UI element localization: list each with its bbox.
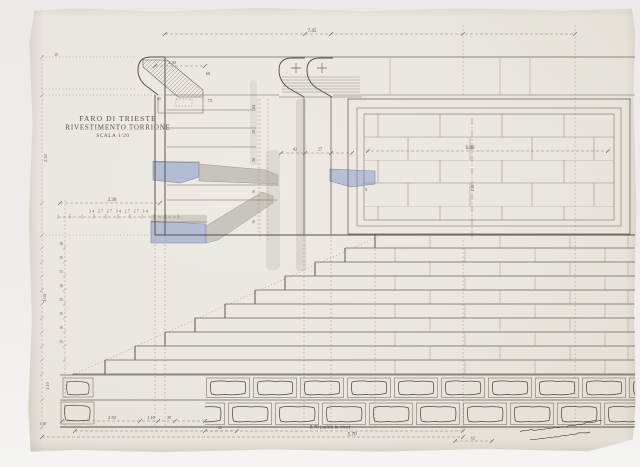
coping-hatch-lines	[282, 77, 360, 92]
grey-streak-pier	[296, 99, 306, 271]
course-tick: 16	[252, 190, 256, 194]
step-tick: 15	[59, 256, 63, 260]
plinth-note-line-2: 5.70	[347, 432, 356, 438]
dim-tick-15: 15	[54, 53, 58, 57]
dim-ledge: 2.30	[108, 198, 117, 203]
step-tick: 15	[59, 340, 63, 344]
course-tick: 84	[252, 105, 256, 109]
plinth-note-line-1: 8.70 (salita in vivo)	[310, 424, 351, 431]
foundation-left-blocks	[61, 378, 94, 424]
grey-streak-wall	[250, 80, 257, 165]
dim-left-base-note: 1.50	[40, 422, 47, 426]
stone-washes	[151, 80, 375, 271]
step-tick: 15	[59, 270, 63, 274]
dim-base-62-right: 62	[471, 437, 475, 441]
course-tick: 20	[252, 130, 256, 134]
title-line-1: FARO DI TRIESTE	[79, 114, 156, 123]
drawing-linework: FARO DI TRIESTE RIVESTIMENTO TORRIONE SC…	[0, 0, 640, 467]
blue-stone-block-lower	[151, 221, 206, 243]
dim-panel-center: 2.30	[471, 185, 475, 192]
coping-profile-left	[279, 58, 305, 97]
dim-left-base: 1.10	[45, 381, 50, 389]
dim-base-250: 2.50	[108, 415, 116, 420]
course-tick: 16	[252, 220, 256, 224]
step-tick: 16	[59, 242, 63, 246]
step-tick: 15	[59, 312, 63, 316]
title-line-2: RIVESTIMENTO TORRIONE	[65, 124, 170, 132]
step-tread-lines	[73, 248, 635, 374]
foundation-course-upper	[205, 376, 635, 400]
step-riser-lines	[73, 235, 375, 375]
course-tick: 28	[252, 158, 256, 162]
dim-block-h: 75	[208, 98, 213, 103]
dim-left-steps: 3.04	[42, 293, 47, 301]
dim-overall-top: 7.45	[308, 29, 317, 34]
dim-module-row: 34 27 27 34 27 27 34	[89, 210, 149, 214]
title-line-3: SCALA 1/20	[96, 133, 129, 139]
dim-block-w: 60	[157, 97, 161, 101]
base-joints-odd	[430, 235, 628, 360]
dim-coping-a: 42	[293, 147, 297, 152]
foundation-course-lower	[205, 401, 635, 426]
coping-profile-right	[307, 58, 333, 97]
step-tick: 16	[59, 284, 63, 288]
photo-of-architectural-drawing: FARO DI TRIESTE RIVESTIMENTO TORRIONE SC…	[0, 0, 640, 467]
dim-zoccolo: 60	[206, 71, 211, 76]
dim-base-28: 28	[167, 416, 171, 420]
dim-base-110: 1.10	[147, 415, 155, 420]
step-tick: 16	[59, 326, 63, 330]
dim-base-62-left: 62	[218, 426, 222, 430]
blue-stone-block-upper	[153, 161, 199, 183]
dim-left-upper: 2.50	[43, 153, 48, 161]
structure-outlines	[60, 57, 635, 427]
coping-center-marks	[291, 63, 327, 73]
step-tick: 15	[59, 298, 63, 302]
dim-coping-b: 27	[318, 147, 323, 152]
panel-ashlar-coursing	[364, 114, 614, 220]
dim-cornice: 1.30	[168, 60, 176, 65]
dim-panel-width: 6.80	[466, 146, 475, 151]
cornice-section-hatch	[143, 60, 203, 97]
